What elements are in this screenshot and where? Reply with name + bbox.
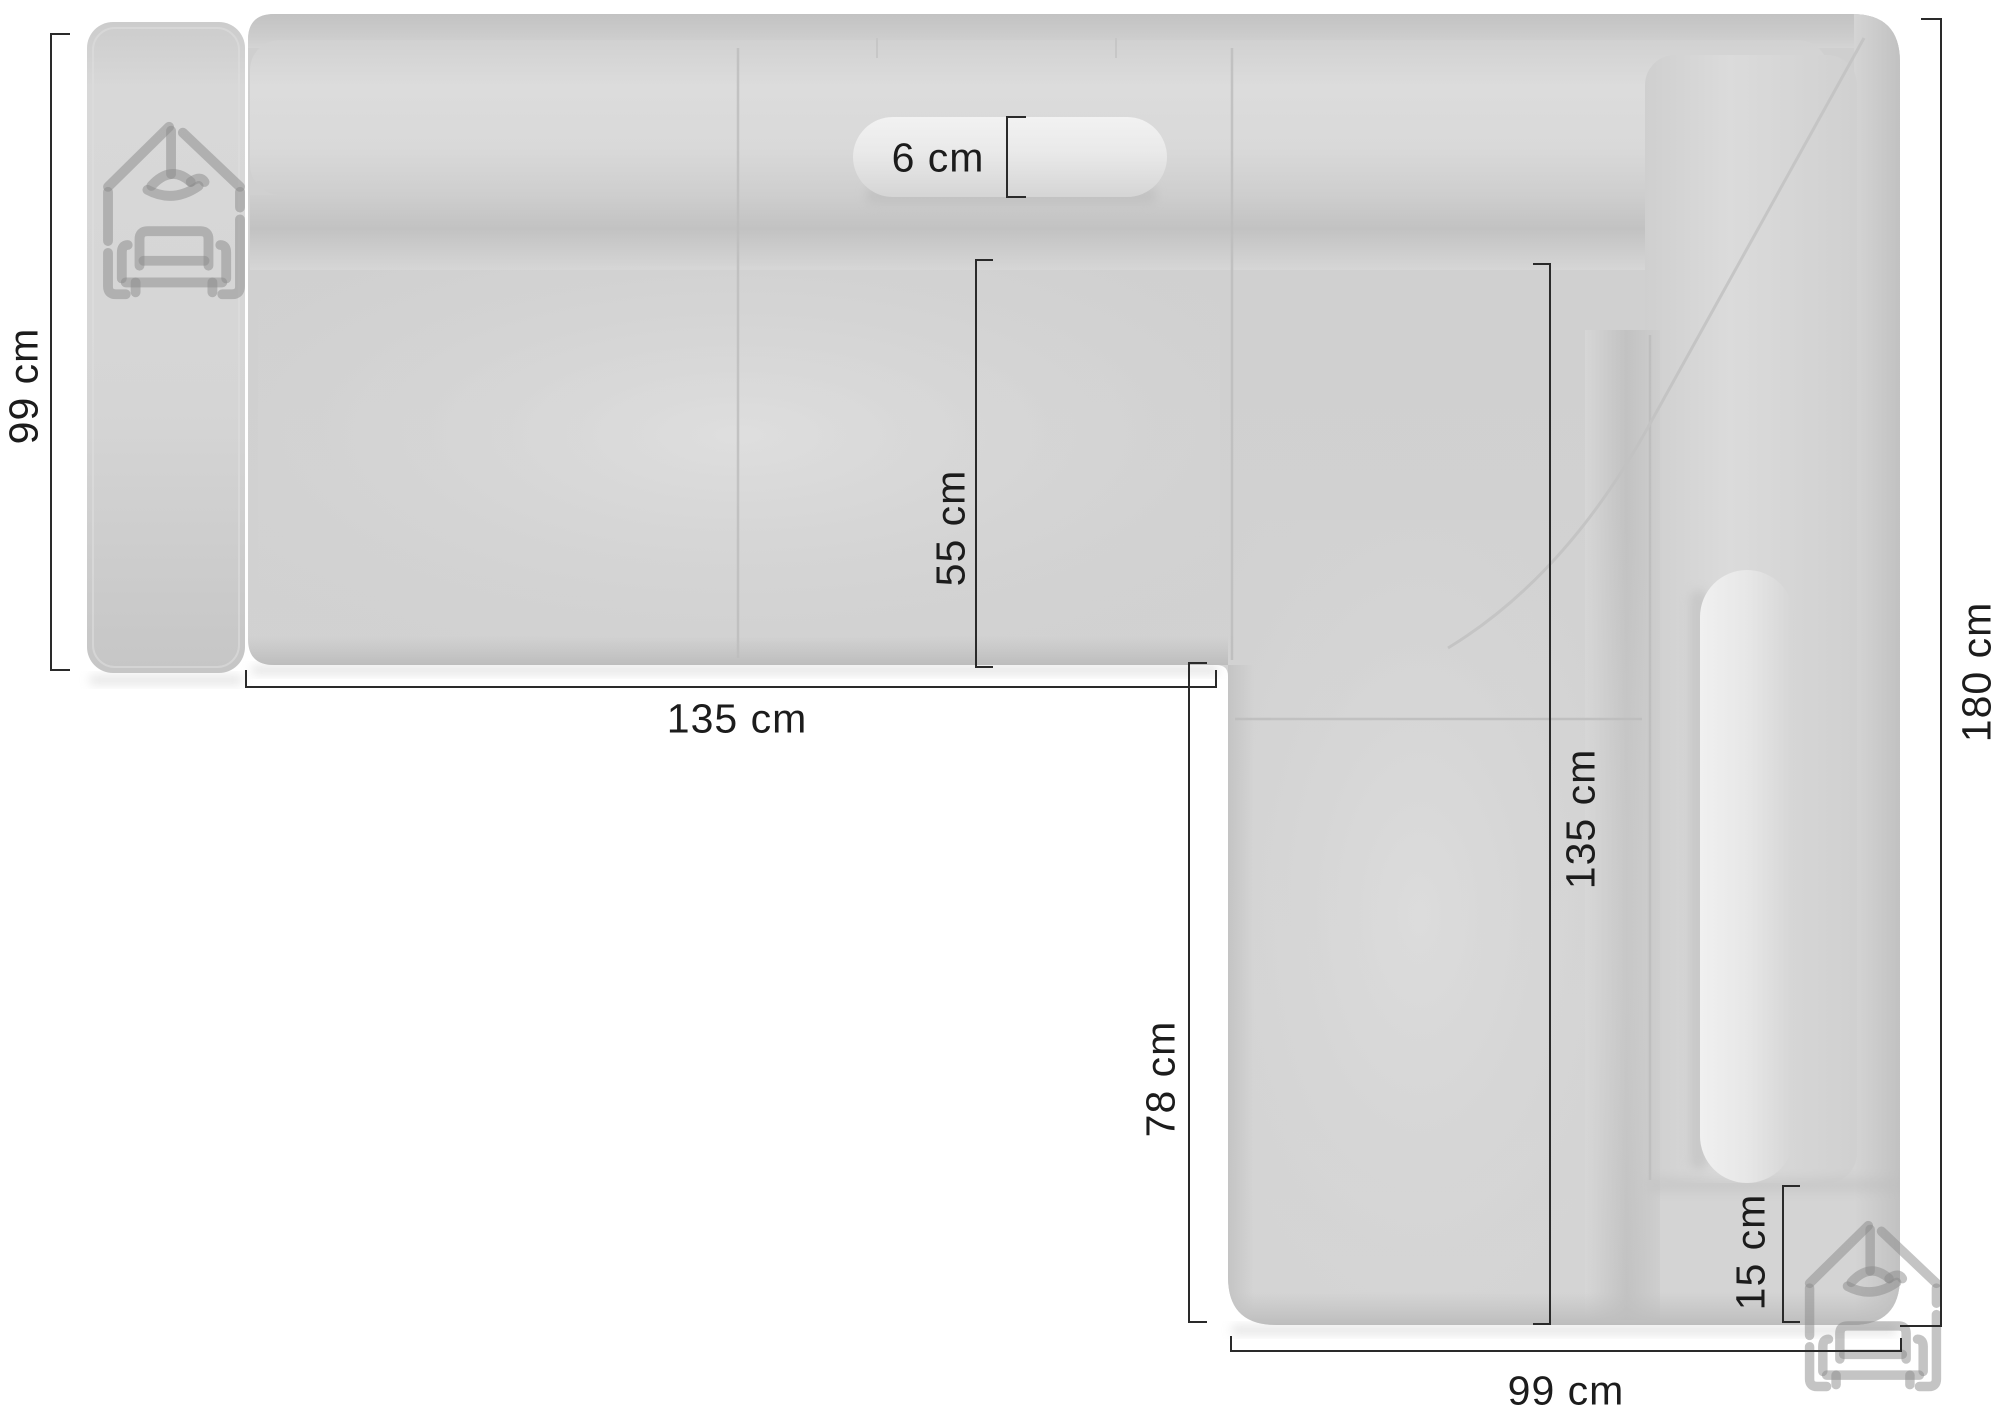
dimension-label: 99 cm <box>4 328 45 445</box>
dimension-tick <box>1900 1338 1902 1352</box>
dimension-tick <box>50 33 70 35</box>
dimension-tick <box>1782 1321 1800 1323</box>
dimension-line <box>1230 1350 1902 1352</box>
sofa-dimension-diagram: 99 cm 135 cm 6 cm 55 cm 78 cm 135 cm <box>0 0 2000 1423</box>
dimension-label: 6 cm <box>892 138 985 179</box>
dimension-label: 55 cm <box>931 470 972 587</box>
sofa-left-armrest <box>87 22 245 684</box>
sofa-top-view <box>0 0 2000 1423</box>
dimension-label: 180 cm <box>1957 602 1998 742</box>
dimension-tick <box>1188 662 1207 664</box>
dimension-tick <box>1533 263 1551 265</box>
dimension-tick <box>1215 670 1217 688</box>
dimension-tick <box>1230 1336 1232 1352</box>
dimension-label: 15 cm <box>1731 1194 1772 1311</box>
dimension-tick <box>1006 116 1026 118</box>
dimension-label: 135 cm <box>1561 749 1602 889</box>
dimension-tick <box>245 670 247 688</box>
dimension-line <box>245 686 1217 688</box>
dimension-label: 135 cm <box>667 699 807 740</box>
sofa-body <box>248 14 1900 1334</box>
dimension-tick <box>1188 1321 1207 1323</box>
dimension-label: 99 cm <box>1508 1371 1625 1412</box>
dimension-tick <box>1900 1325 1942 1327</box>
dimension-line <box>1188 662 1190 1323</box>
dimension-tick <box>1533 1323 1551 1325</box>
side-bolster-pillow <box>1690 570 1794 1183</box>
dimension-tick <box>50 669 70 671</box>
dimension-line <box>975 259 977 668</box>
dimension-label: 78 cm <box>1141 1021 1182 1138</box>
dimension-line <box>1549 263 1551 1325</box>
dimension-tick <box>975 259 993 261</box>
dimension-line <box>1940 18 1942 1327</box>
dimension-tick <box>975 666 993 668</box>
dimension-line <box>1782 1185 1784 1323</box>
dimension-line <box>50 33 52 671</box>
dimension-line <box>1006 116 1008 198</box>
dimension-tick <box>1006 196 1026 198</box>
dimension-tick <box>1782 1185 1800 1187</box>
dimension-tick <box>1921 18 1942 20</box>
